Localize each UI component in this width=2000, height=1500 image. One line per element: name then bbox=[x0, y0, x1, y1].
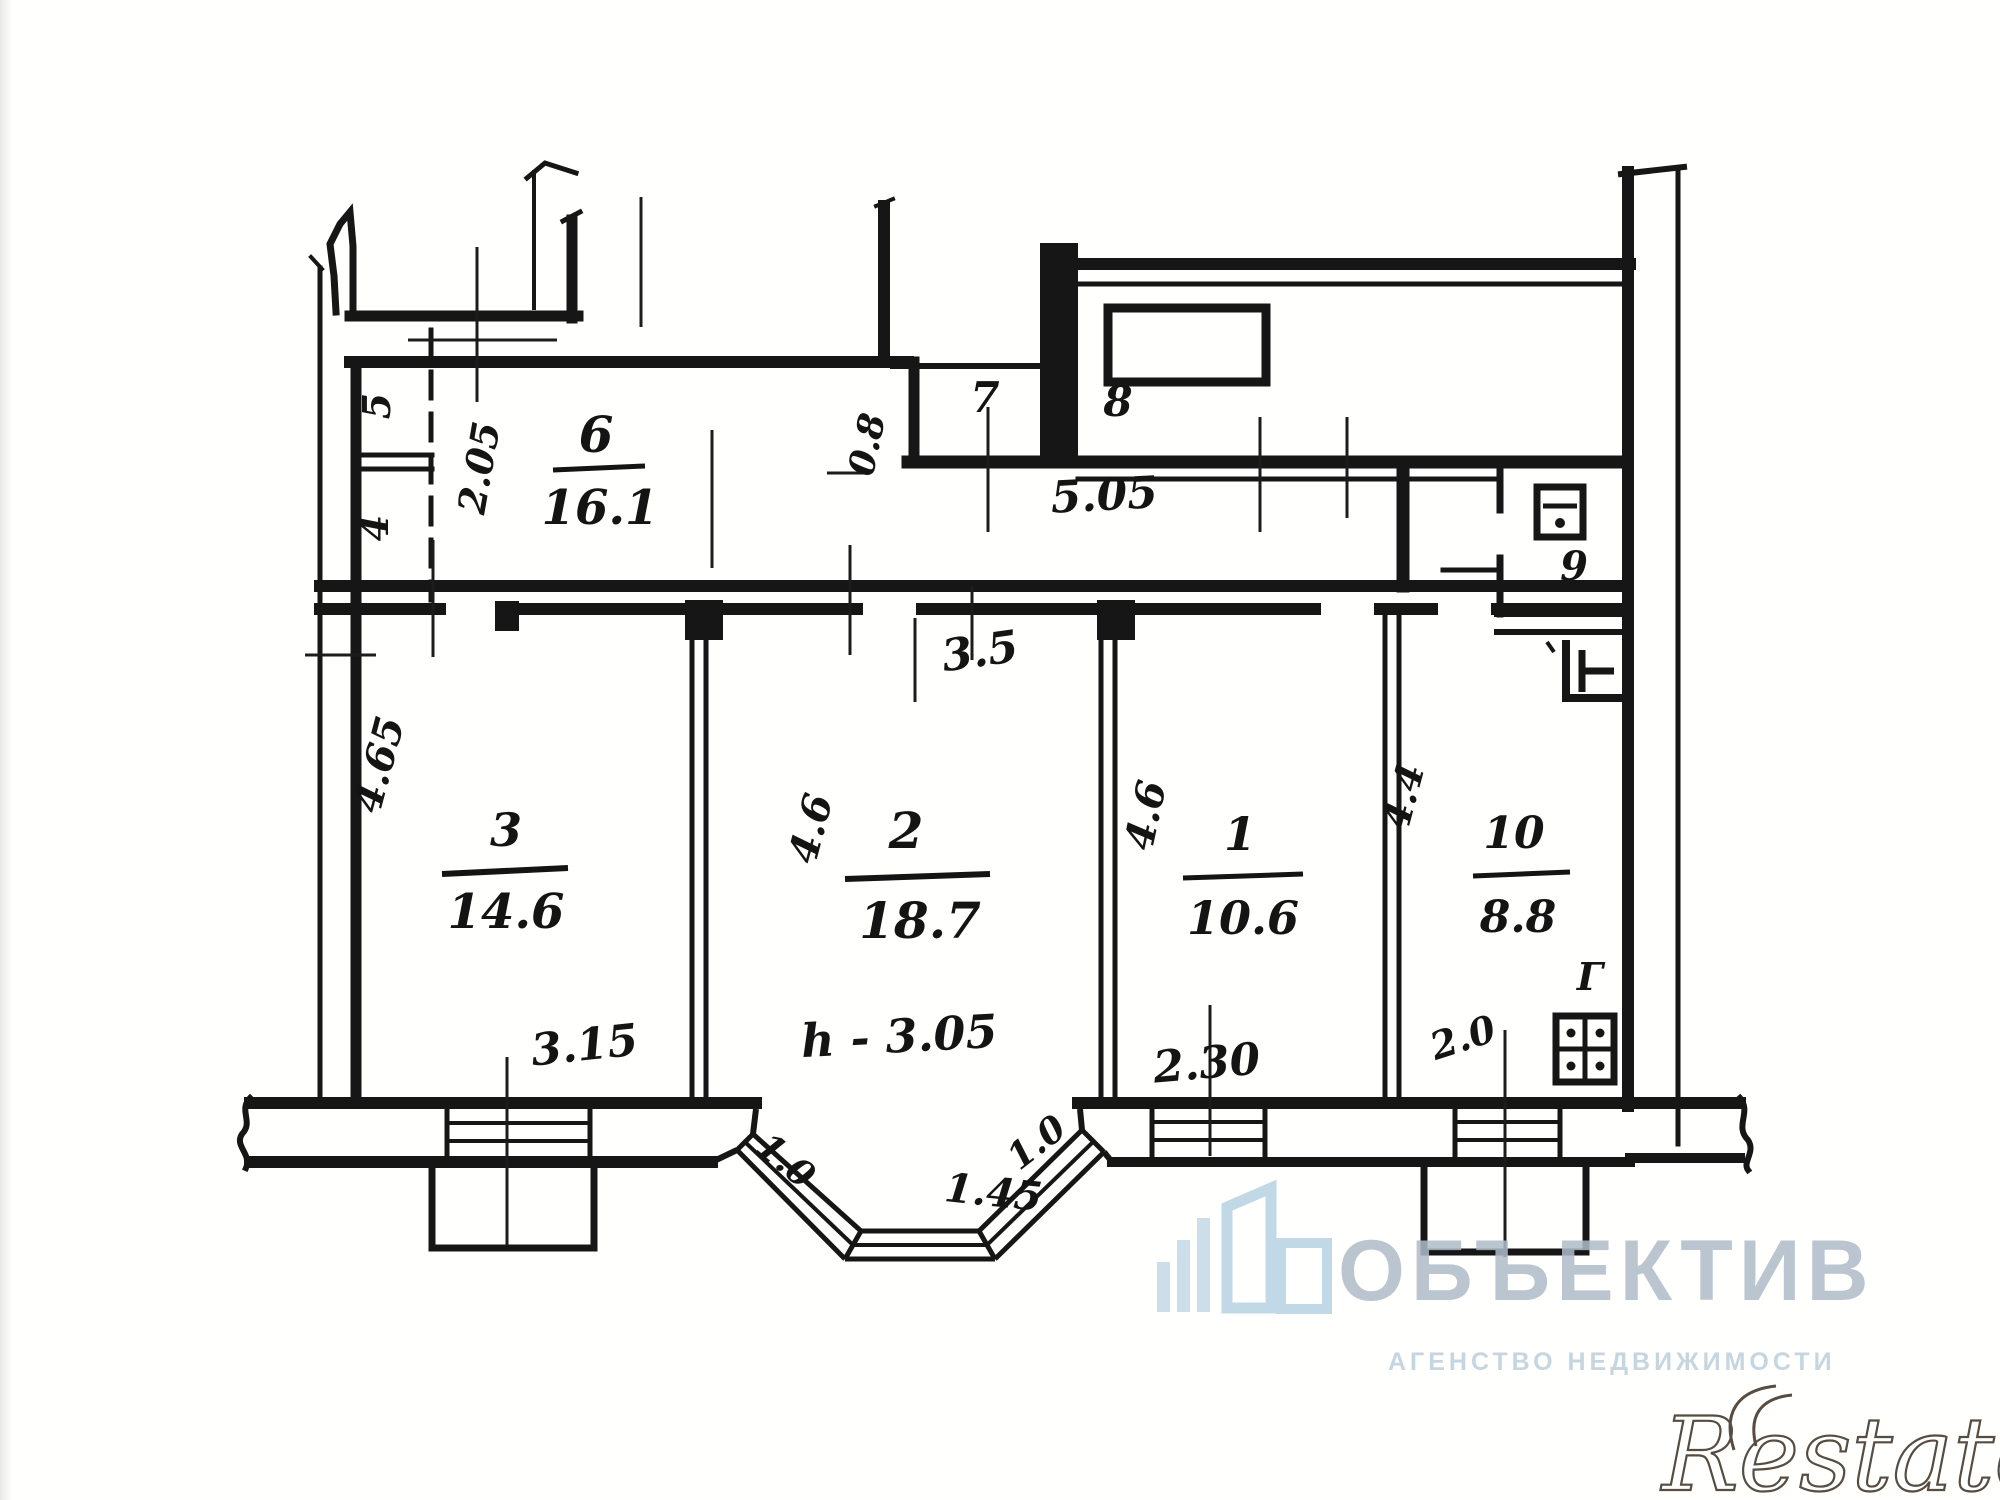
balcony-room3 bbox=[432, 1166, 594, 1248]
room-2-number: 2 bbox=[888, 801, 924, 860]
toilet-icon bbox=[1547, 640, 1626, 698]
dim-room10-height: 4.4 bbox=[1373, 759, 1434, 835]
room-10-number: 10 bbox=[1483, 808, 1545, 859]
dim-room2-height: 4.6 bbox=[779, 789, 842, 868]
room-1-area: 10.6 bbox=[1187, 891, 1299, 945]
dim-ceiling-height: h - 3.05 bbox=[800, 1004, 999, 1068]
dim-room1-window: 2.30 bbox=[1150, 1033, 1263, 1093]
dim-room3-width: 3.15 bbox=[529, 1015, 641, 1077]
room-4-number: 4 bbox=[352, 515, 397, 541]
dim-hall-small: 2.05 bbox=[448, 418, 509, 518]
room-6-number: 6 bbox=[579, 405, 614, 464]
dim-bay-right: 1.0 bbox=[999, 1107, 1074, 1179]
room-6-fraction-line bbox=[553, 466, 645, 470]
window-room10 bbox=[1455, 1103, 1560, 1162]
agency-logo-icon bbox=[1157, 1188, 1327, 1312]
floorplan-page: 6 16.1 3 14.6 2 18.7 1 10.6 10 8.8 5 4 7… bbox=[0, 0, 2000, 1500]
dim-hall-length: 5.05 bbox=[1049, 467, 1159, 524]
room-3-number: 3 bbox=[490, 803, 522, 857]
agency-watermark-tagline: АГЕНСТВО НЕДВИЖИМОСТИ bbox=[1388, 1348, 1836, 1376]
restate-logo: Restate bbox=[1660, 1386, 2000, 1500]
room-6-area: 16.1 bbox=[542, 480, 659, 536]
dim-room2-width: 3.5 bbox=[939, 621, 1022, 682]
room-10-fraction-line bbox=[1473, 872, 1570, 876]
room-8-number: 8 bbox=[1102, 377, 1132, 426]
room-9-number: 9 bbox=[1560, 543, 1588, 590]
agency-watermark: ОБЪЕКТИВ АГЕНСТВО НЕДВИЖИМОСТИ bbox=[1157, 1188, 1875, 1376]
labels: 6 16.1 3 14.6 2 18.7 1 10.6 10 8.8 5 4 7… bbox=[344, 373, 1606, 1221]
floorplan-drawing: 6 16.1 3 14.6 2 18.7 1 10.6 10 8.8 5 4 7… bbox=[0, 0, 2000, 1500]
dim-closet-width: 0.8 bbox=[840, 410, 894, 480]
dim-room1-height: 4.6 bbox=[1116, 776, 1176, 854]
dim-room10-window: 2.0 bbox=[1423, 1005, 1501, 1069]
stove-icon bbox=[1556, 1016, 1614, 1082]
restate-logo-text: Restate bbox=[1660, 1396, 2000, 1500]
room-2-fraction-line bbox=[845, 874, 990, 879]
electric-meter-icon bbox=[1537, 487, 1583, 537]
room-7-number: 7 bbox=[970, 373, 999, 422]
agency-watermark-brand: ОБЪЕКТИВ bbox=[1338, 1223, 1875, 1319]
room-10-area: 8.8 bbox=[1479, 892, 1557, 943]
room-3-area: 14.6 bbox=[448, 884, 565, 940]
room-1-number: 1 bbox=[1224, 807, 1256, 861]
room-5-number: 5 bbox=[354, 393, 399, 419]
room-2-area: 18.7 bbox=[859, 891, 981, 950]
window-room3 bbox=[447, 1103, 590, 1162]
room-1-fraction-line bbox=[1183, 874, 1303, 878]
gas-mark: Г bbox=[1576, 954, 1606, 999]
room-3-fraction-line bbox=[442, 868, 568, 874]
